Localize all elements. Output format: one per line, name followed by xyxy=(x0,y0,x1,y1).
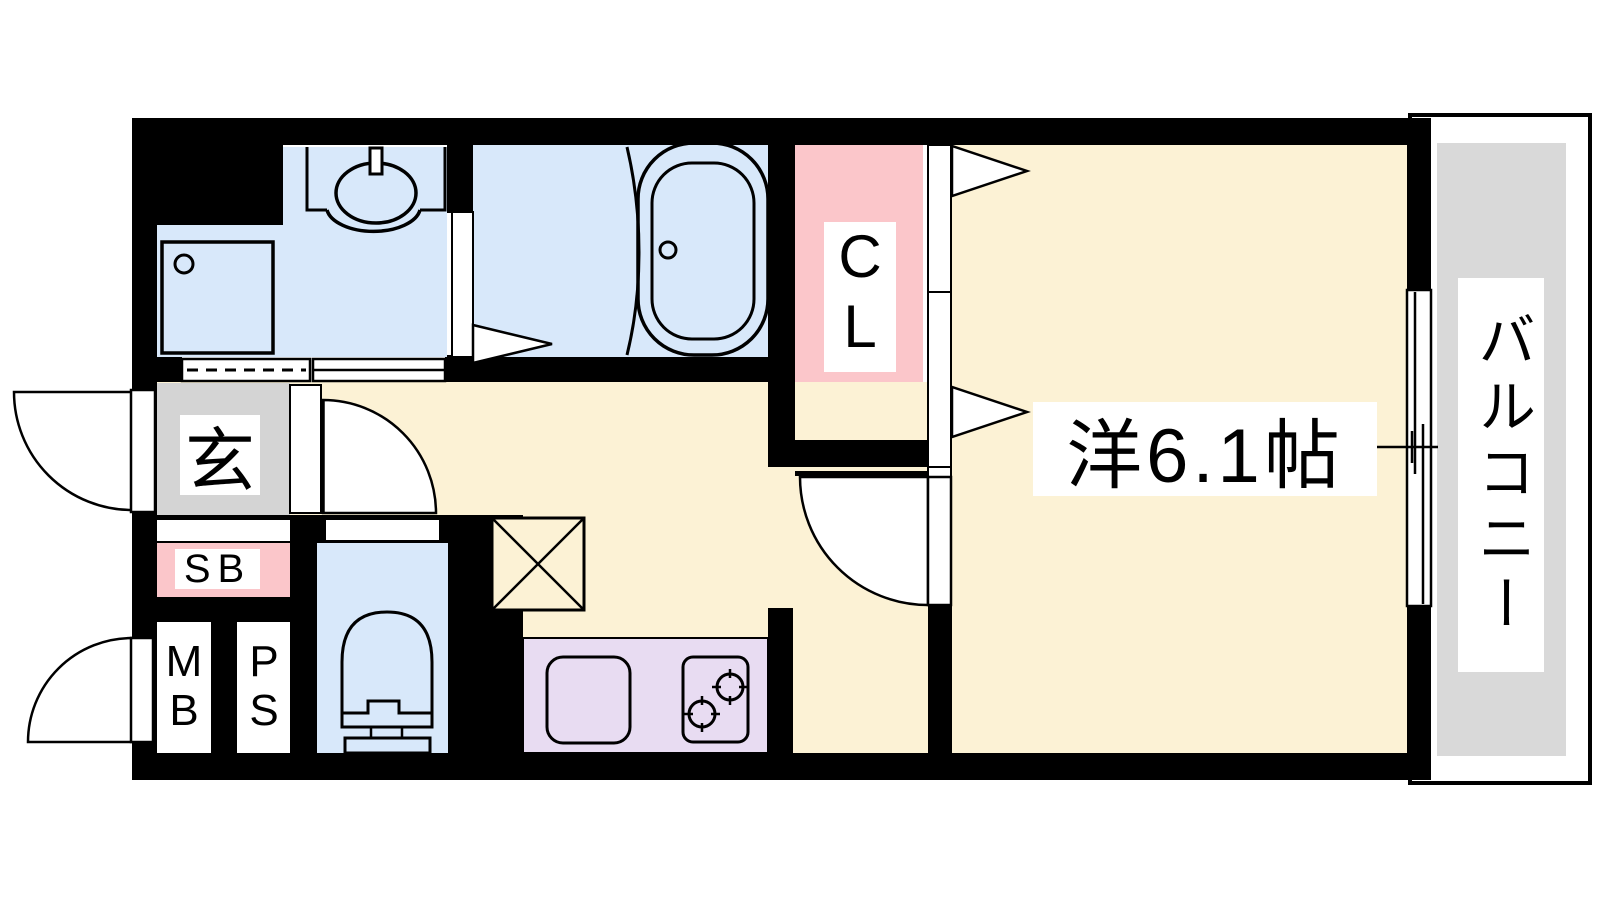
bathroom-door-leaf xyxy=(452,212,473,357)
entrance-inner-step xyxy=(290,385,321,513)
wall-bath-divider-top xyxy=(447,145,473,213)
label-balcony: バルコニー xyxy=(1458,278,1544,672)
wall-closet-left xyxy=(768,145,795,467)
wall-below-washroom xyxy=(157,357,182,382)
bedroom-door-lintel xyxy=(795,471,928,476)
meter-box-door-leaf xyxy=(131,638,153,742)
label-meter-box: MB xyxy=(159,637,209,741)
refrigerator-space-icon xyxy=(492,518,584,610)
label-closet: CL xyxy=(824,222,896,372)
bathroom-floor xyxy=(473,145,768,357)
toilet-door xyxy=(325,519,440,541)
washroom-floor xyxy=(157,225,447,357)
wall-bedroom-left-lower xyxy=(928,605,952,753)
meter-box-door-swing-arc xyxy=(28,638,132,742)
wall-below-bathroom xyxy=(445,357,795,382)
entrance-door-leaf xyxy=(131,390,155,512)
bedroom-door-leaf xyxy=(928,477,951,605)
label-pipe-space: PS xyxy=(239,637,289,741)
floor-plan: 洋6.1帖 バルコニー 玄 SB MB PS CL xyxy=(0,0,1600,900)
wall-right-lower xyxy=(1407,606,1431,780)
label-western-room: 洋6.1帖 xyxy=(1033,402,1377,496)
label-entrance: 玄 xyxy=(180,415,260,495)
wall-kitchen-right xyxy=(768,608,793,753)
wall-closet-bottom xyxy=(768,440,928,467)
entrance-door-swing-arc xyxy=(14,392,132,510)
wall-top xyxy=(132,118,1431,145)
kitchen-counter xyxy=(523,638,768,753)
label-shoe-box: SB xyxy=(175,549,260,589)
wall-right-upper xyxy=(1407,118,1431,290)
entrance-step-strip xyxy=(157,520,290,541)
meter-box-door xyxy=(28,638,153,742)
toilet-room-floor xyxy=(317,543,448,753)
washroom-entry-strips xyxy=(182,359,445,381)
kitchen-counter-top xyxy=(523,638,768,753)
wall-washroom-corner xyxy=(157,145,283,225)
entrance-door xyxy=(14,390,155,512)
